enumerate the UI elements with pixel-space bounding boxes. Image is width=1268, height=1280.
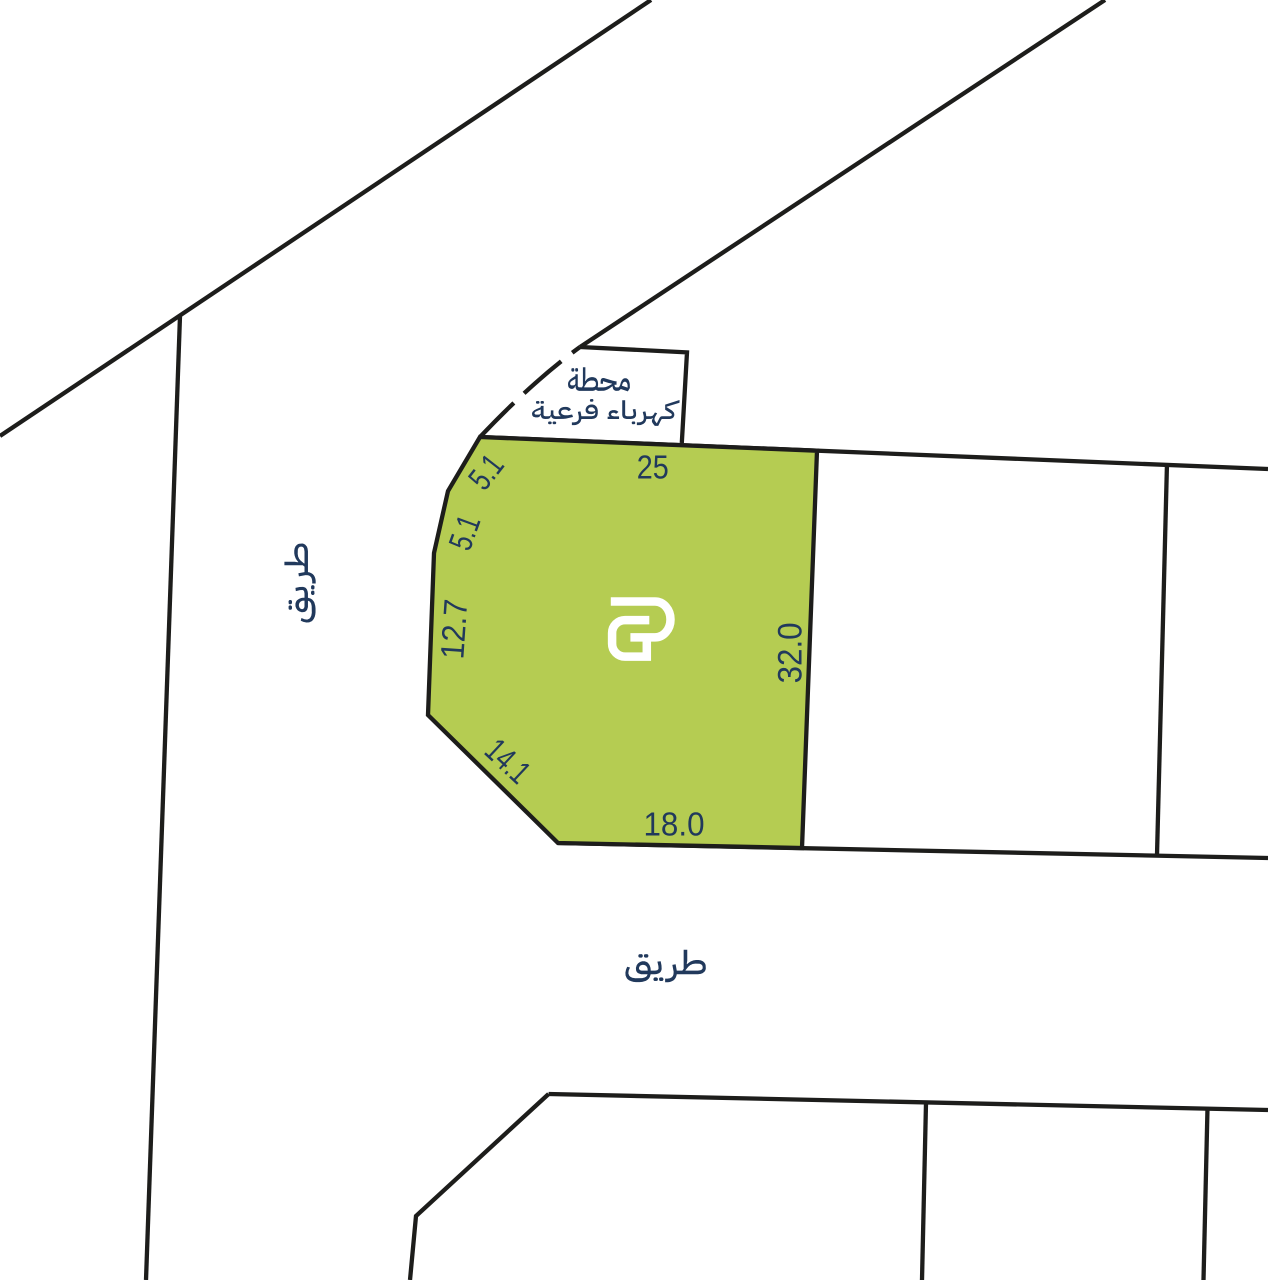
svg-text:32.0: 32.0 [772, 622, 810, 683]
svg-text:18.0: 18.0 [644, 805, 705, 842]
svg-text:25: 25 [637, 448, 669, 485]
svg-text:12.7: 12.7 [433, 598, 474, 660]
